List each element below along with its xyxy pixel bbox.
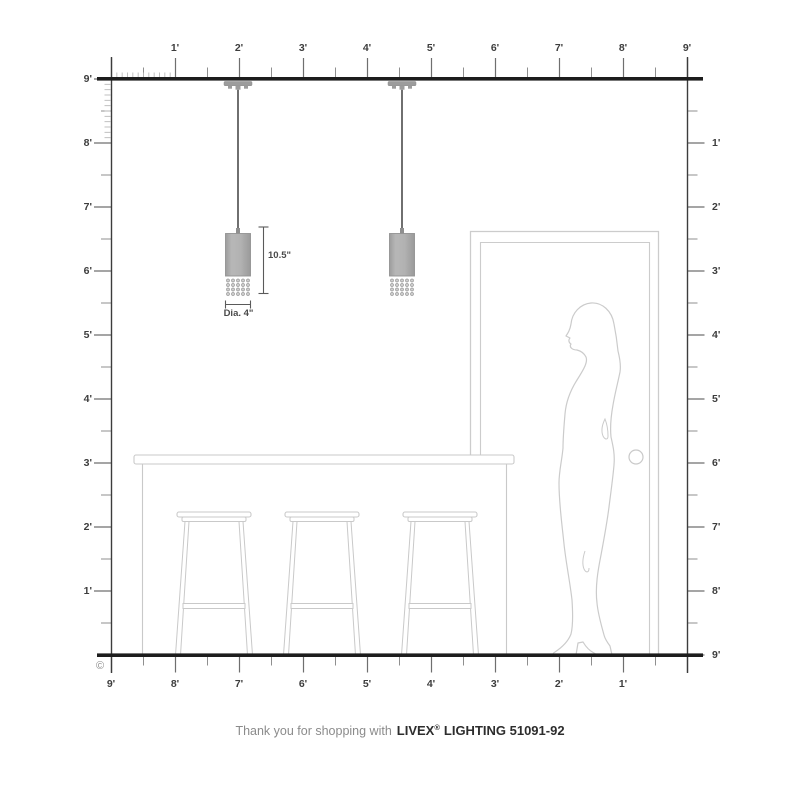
- ruler-label: 6': [62, 264, 92, 278]
- countertop: [134, 455, 514, 464]
- pendant-light: [388, 82, 416, 296]
- ruler-label: 4': [419, 677, 443, 691]
- fixture-height-label: 10.5": [268, 250, 291, 262]
- bar-counter: [134, 455, 514, 655]
- ruler-label: 5': [355, 677, 379, 691]
- ruler-label: 4': [62, 392, 92, 406]
- ruler-label: 9': [675, 41, 699, 55]
- caption: Thank you for shopping withLIVEX®LIGHTIN…: [0, 719, 800, 740]
- ruler-label: 2': [227, 41, 251, 55]
- ruler-label: 5': [62, 328, 92, 342]
- ruler-label: 4': [712, 328, 742, 342]
- ruler-label: 2': [547, 677, 571, 691]
- ruler-label: 3': [712, 264, 742, 278]
- ruler-label: 7': [547, 41, 571, 55]
- ruler-label: 3': [291, 41, 315, 55]
- ruler-label: 8': [611, 41, 635, 55]
- ruler-label: 3': [62, 456, 92, 470]
- ruler-label: 8': [62, 136, 92, 150]
- ruler-label: 6': [483, 41, 507, 55]
- floor-line: [97, 653, 703, 657]
- ruler-label: 6': [291, 677, 315, 691]
- ruler-label: 2': [62, 520, 92, 534]
- ceiling-line: [97, 77, 703, 81]
- ruler-label: 9': [62, 72, 92, 86]
- ruler-label: 5': [419, 41, 443, 55]
- ruler-label: 6': [712, 456, 742, 470]
- copyright-symbol: ©: [92, 660, 108, 672]
- ruler-label: 5': [712, 392, 742, 406]
- pendant-light: [224, 82, 252, 296]
- caption-suffix: LIGHTING 51091-92: [444, 723, 565, 738]
- ruler-label: 1': [62, 584, 92, 598]
- height-dimension-line: [259, 227, 269, 294]
- ruler-label: 8': [712, 584, 742, 598]
- ruler-label: 4': [355, 41, 379, 55]
- brand-name: LIVEX: [397, 723, 435, 738]
- ruler-label: 7': [712, 520, 742, 534]
- registered-mark: ®: [434, 723, 440, 732]
- ruler-label: 9': [99, 677, 123, 691]
- ruler-label: 7': [62, 200, 92, 214]
- ruler-label: 1': [611, 677, 635, 691]
- scale-diagram: 1' 2' 3' 4' 5' 6' 7' 8' 9' 9' 8' 7' 6' 5…: [0, 0, 800, 800]
- caption-prefix: Thank you for shopping with: [235, 724, 391, 738]
- ruler-label: 8': [163, 677, 187, 691]
- ruler-label: 2': [712, 200, 742, 214]
- fixture-diameter-label: Dia. 4": [210, 308, 267, 320]
- ruler-label: 3': [483, 677, 507, 691]
- ruler-label: 9': [712, 648, 742, 662]
- ruler-label: 1': [163, 41, 187, 55]
- ruler-label: 1': [712, 136, 742, 150]
- door-knob: [629, 450, 643, 464]
- ruler-label: 7': [227, 677, 251, 691]
